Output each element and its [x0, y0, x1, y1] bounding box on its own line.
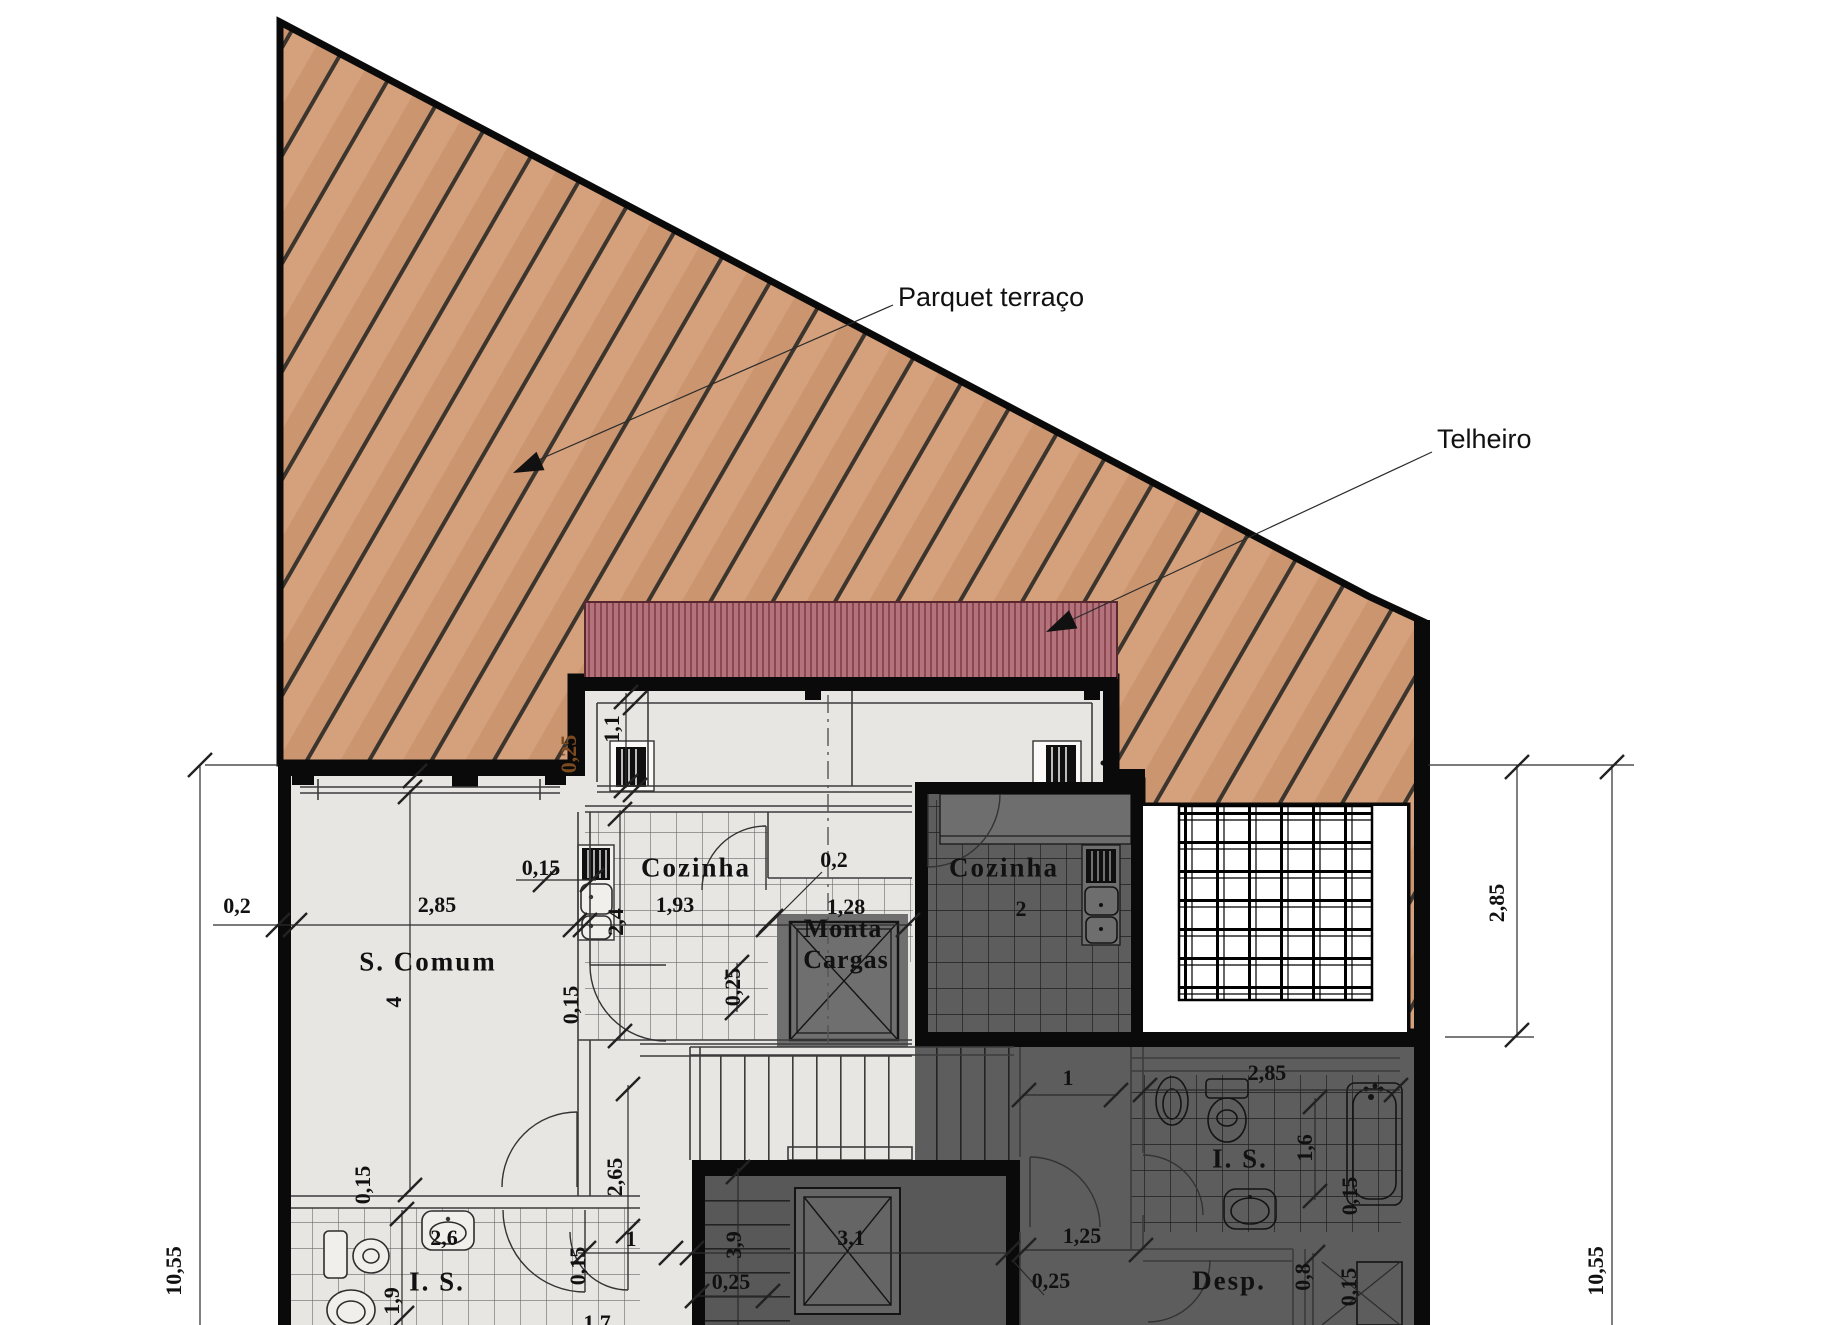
floor-plan-canvas: Parquet terraço Telheiro S. Comum 4 Cozi… [0, 0, 1842, 1325]
dim-k-1-1: 1,1 [601, 715, 623, 743]
dim-k-1-28: 1,28 [827, 896, 866, 918]
dim-is-1-9: 1,9 [381, 1287, 403, 1315]
room-label-monta: Monta [804, 916, 883, 942]
dim-s-comum-4: 4 [383, 997, 405, 1008]
skylight [1143, 806, 1407, 1032]
room-label-cozinha-left: Cozinha [641, 855, 751, 882]
dim-r-0-8: 0,8 [1292, 1263, 1314, 1291]
dim-parapet-0-25: 0,25 [558, 735, 580, 774]
dim-r-0-15b: 0,15 [1338, 1268, 1360, 1307]
dim-r-0-25: 0,25 [1032, 1270, 1071, 1292]
plan-drawing [0, 0, 1842, 1325]
dim-r-2-85: 2,85 [1248, 1062, 1287, 1084]
dim-k-0-15: 0,15 [522, 857, 561, 879]
dim-st-3-1: 3,1 [837, 1227, 865, 1249]
dim-is-0-15: 0,15 [567, 1247, 589, 1286]
dim-r-1-25: 1,25 [1063, 1225, 1102, 1247]
room-label-desp: Desp. [1192, 1268, 1266, 1295]
dim-k-0-25: 0,25 [722, 968, 744, 1007]
room-label-cozinha-right-num: 2 [1016, 898, 1027, 920]
annotation-telheiro: Telheiro [1437, 426, 1532, 453]
room-label-cargas: Cargas [803, 947, 888, 973]
dim-is-2-6: 2,6 [430, 1227, 458, 1249]
dim-k-0-15v: 0,15 [560, 986, 582, 1025]
room-label-s-comum: S. Comum [359, 949, 497, 976]
dim-st-3-9: 3,9 [723, 1231, 745, 1259]
dim-site-0-2: 0,2 [223, 895, 251, 917]
dim-sc-0-15: 0,15 [352, 1166, 374, 1205]
dim-st-1-7: 1,7 [583, 1312, 611, 1325]
dim-k-1-93: 1,93 [656, 894, 695, 916]
dim-st-1: 1 [626, 1228, 637, 1250]
dim-r-0-15a: 0,15 [1339, 1177, 1361, 1216]
dim-site-2-85-right: 2,85 [1486, 884, 1508, 923]
dim-st-2-65: 2,65 [604, 1158, 626, 1197]
telheiro-roof [585, 602, 1117, 678]
room-label-cozinha-right: Cozinha [949, 855, 1059, 882]
dim-k-0-2: 0,2 [820, 849, 848, 871]
dim-site-10-55-left: 10,55 [163, 1246, 185, 1296]
dim-r-1-6: 1,6 [1294, 1134, 1316, 1162]
dim-r-1: 1 [1063, 1067, 1074, 1089]
dim-st-0-25: 0,25 [712, 1271, 751, 1293]
toilet-cistern [324, 1231, 347, 1278]
dim-site-2-85: 2,85 [418, 894, 457, 916]
room-label-is-left: I. S. [409, 1269, 465, 1296]
annotation-parquet-terraco: Parquet terraço [898, 284, 1084, 311]
dim-k-2-4: 2,4 [605, 908, 627, 936]
room-label-is-right: I. S. [1212, 1146, 1268, 1173]
dim-site-10-55-right: 10,55 [1585, 1246, 1607, 1296]
